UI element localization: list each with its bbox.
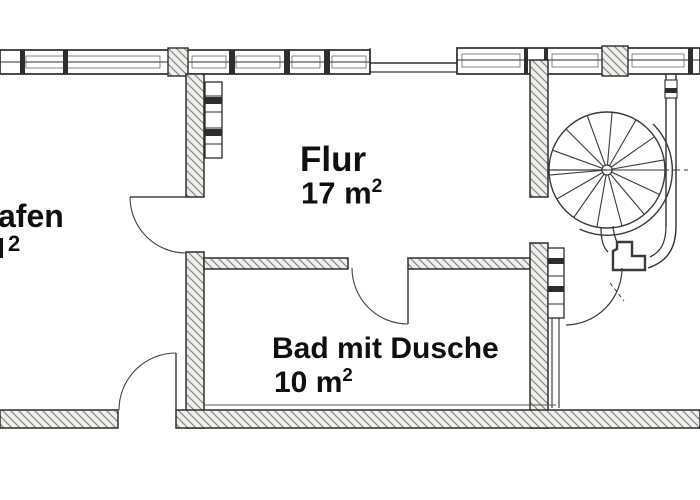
room-label-flur: Flur — [300, 142, 366, 177]
stair-outer-rail — [580, 124, 673, 235]
floor-plan-drawing — [0, 0, 700, 500]
room-left-area-sup: 2 — [8, 231, 20, 256]
bad-name: Bad mit Dusche — [272, 332, 499, 365]
bottom-door-swing — [119, 353, 176, 410]
room-area-flur: 17 m2 — [301, 177, 382, 208]
room-label-bad: Bad mit Dusche — [272, 334, 499, 364]
left-divider-wall — [186, 74, 204, 428]
bad-area-sup: 2 — [342, 364, 352, 385]
bad-area-value: 10 m — [274, 366, 342, 399]
wall-shelf-symbol-top — [205, 82, 222, 158]
room-area-bad: 10 m2 — [274, 366, 353, 398]
wall-shelf-symbol-right — [548, 248, 564, 408]
room-left-name: afen — [0, 198, 64, 234]
stair-base-swing-arc — [566, 268, 622, 325]
flur-name: Flur — [300, 140, 366, 179]
flur-area-value: 17 m — [301, 175, 372, 210]
room-label-left-cutoff: afen — [0, 200, 64, 232]
top-wall-recessed-segment — [370, 48, 457, 74]
cut-letter-remnant — [0, 238, 3, 258]
top-window-wall — [0, 46, 700, 76]
flur-area-sup: 2 — [372, 176, 383, 197]
room-area-left-cutoff: 2 — [8, 233, 20, 255]
stair-entry-step — [613, 242, 645, 270]
bottom-exterior-wall — [0, 405, 700, 428]
bedroom-door-swing — [130, 197, 186, 253]
bad-door-swing — [352, 268, 408, 324]
right-divider-wall — [530, 60, 548, 428]
spiral-staircase — [548, 112, 688, 325]
floor-plan-page: afen 2 Flur 17 m2 Bad mit Dusche 10 m2 — [0, 0, 700, 500]
wall-pier — [602, 46, 628, 76]
wall-pier — [168, 48, 188, 76]
middle-wall — [204, 258, 530, 269]
